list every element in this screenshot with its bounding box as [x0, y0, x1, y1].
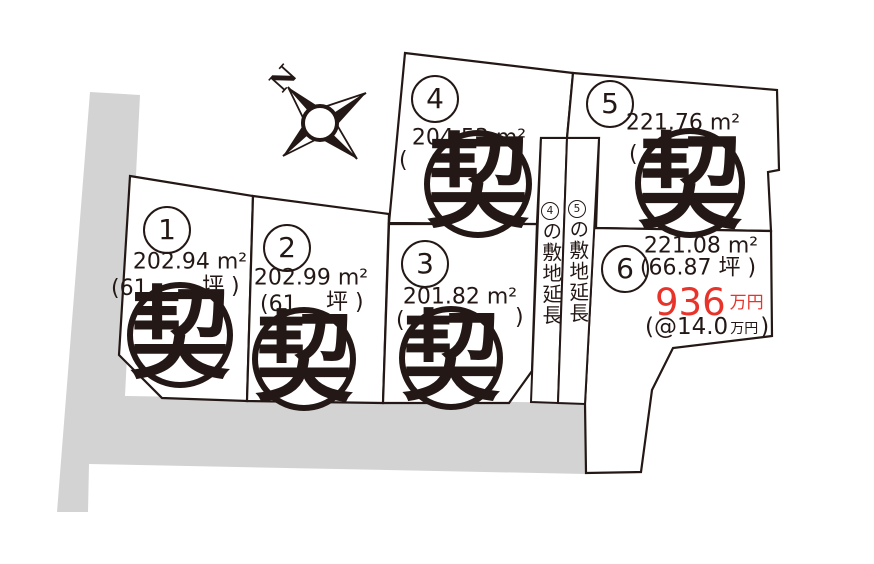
plot-6-price-unit: 万円 [730, 295, 764, 312]
plot-5-tsubo-left: ( [629, 142, 638, 167]
plot-6-unit-price-open: (@ [645, 316, 677, 339]
plot-6-tsubo: (66.87 坪 ) [640, 255, 756, 280]
extension-5-label: の敷地延長 [567, 219, 587, 324]
land-plot-map: N 1 202.94 m² (61 坪 ) 2 202.99 m² (61 坪 … [0, 0, 874, 564]
plot-6-unit-price-close: ) [760, 316, 769, 339]
plot-6-unit-price-value: 14.0 [677, 316, 728, 339]
plot-5-number: 5 [601, 90, 619, 118]
plot-2-stamp-char: 契 [255, 310, 353, 408]
extension-4-number-badge: 4 [541, 202, 559, 220]
plot-2-number: 2 [278, 234, 296, 262]
plot-2-area: 202.99 m² [254, 265, 368, 290]
plot-1-contract-stamp: 契 [127, 282, 233, 388]
plot-4-tsubo-left: ( [399, 148, 408, 173]
plot-5-stamp-char: 契 [638, 131, 742, 235]
extension-5-number: 5 [574, 204, 581, 215]
plot-1-stamp-char: 契 [130, 285, 230, 385]
plot-6-unit-price-yen-unit: 万円 [730, 322, 758, 336]
extension-4-number: 4 [547, 206, 554, 217]
plot-3-number-badge: 3 [401, 240, 449, 288]
plot-3-number: 3 [416, 250, 434, 278]
plot-1-area: 202.94 m² [133, 249, 247, 274]
plot-4-number-badge: 4 [411, 75, 459, 123]
plot-3-stamp-char: 契 [402, 309, 500, 407]
extension-4-label: の敷地延長 [540, 221, 560, 326]
compass-rose-icon [283, 87, 366, 159]
plot-6-unit-price: (@ 14.0 万円 ) [645, 316, 769, 339]
plot-1-number-badge: 1 [143, 206, 191, 254]
extension-5-number-badge: 5 [568, 200, 586, 218]
plot-3-tsubo-right: ) [515, 305, 524, 330]
plot-2-contract-stamp: 契 [252, 307, 356, 411]
plot-5-contract-stamp: 契 [635, 128, 745, 238]
plot-6-number: 6 [616, 255, 634, 283]
plot-4-number: 4 [426, 85, 444, 113]
plot-4-contract-stamp: 契 [424, 130, 532, 238]
plot-4-stamp-char: 契 [427, 133, 529, 235]
plot-3-contract-stamp: 契 [399, 306, 503, 410]
plot-1-number: 1 [158, 216, 176, 244]
